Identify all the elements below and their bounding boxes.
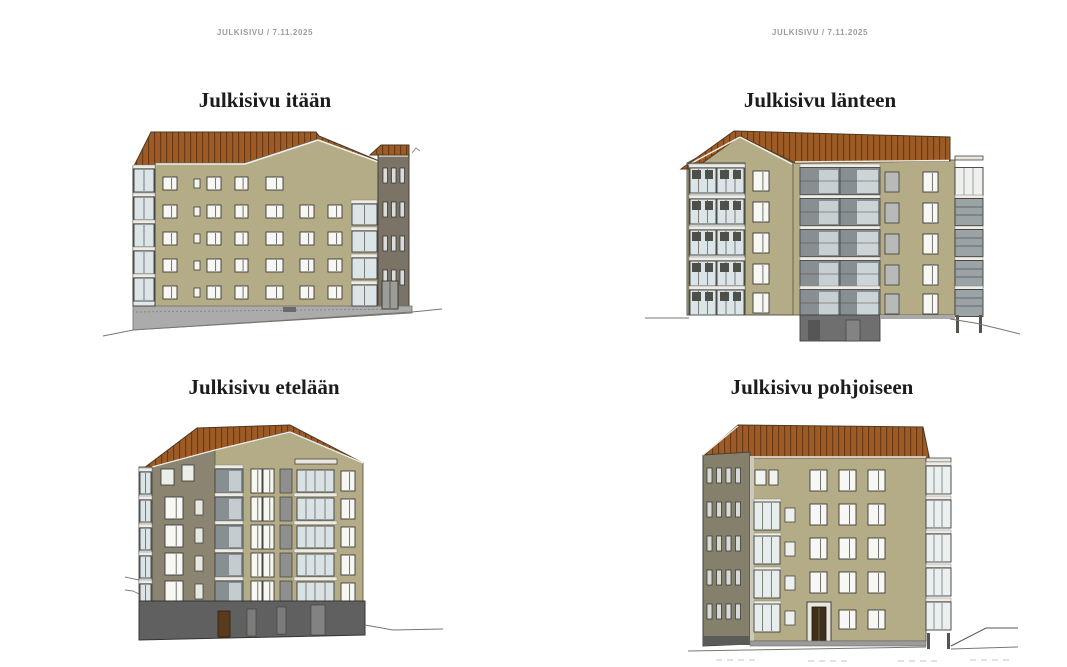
left-balconies [689,163,745,315]
foundation-dashes [716,660,1010,661]
basement [800,315,955,341]
title-facade-east: Julkisivu itään [199,88,331,113]
west-building [645,131,1020,341]
north-building [688,425,1018,661]
right-balconies [926,458,951,649]
title-facade-west: Julkisivu länteen [744,88,896,113]
left-balconies [133,165,155,306]
right-balconies [955,156,983,333]
brochure-page: JULKISIVU / 7.11.2025 JULKISIVU / 7.11.2… [0,0,1067,667]
east-building [103,132,442,336]
plinth [750,641,926,646]
basement [139,601,365,640]
title-facade-south: Julkisivu etelään [188,375,339,400]
north-elevation-drawing [688,408,1020,666]
west-elevation-drawing [645,123,1020,345]
plinth [133,306,412,330]
title-facade-north: Julkisivu pohjoiseen [731,375,914,400]
projecting-balconies [294,459,337,609]
south-building [125,425,443,640]
left-balconies [139,467,152,606]
roof-peak-marker [412,148,420,153]
south-elevation-drawing [125,405,447,650]
center-balconies [800,164,880,317]
page-header-left: JULKISIVU / 7.11.2025 [217,28,313,37]
tower-roof [370,145,409,155]
page-header-right: JULKISIVU / 7.11.2025 [772,28,868,37]
entrance-door [807,602,831,642]
recessed-balconies [215,465,243,605]
east-elevation-drawing [100,120,445,344]
